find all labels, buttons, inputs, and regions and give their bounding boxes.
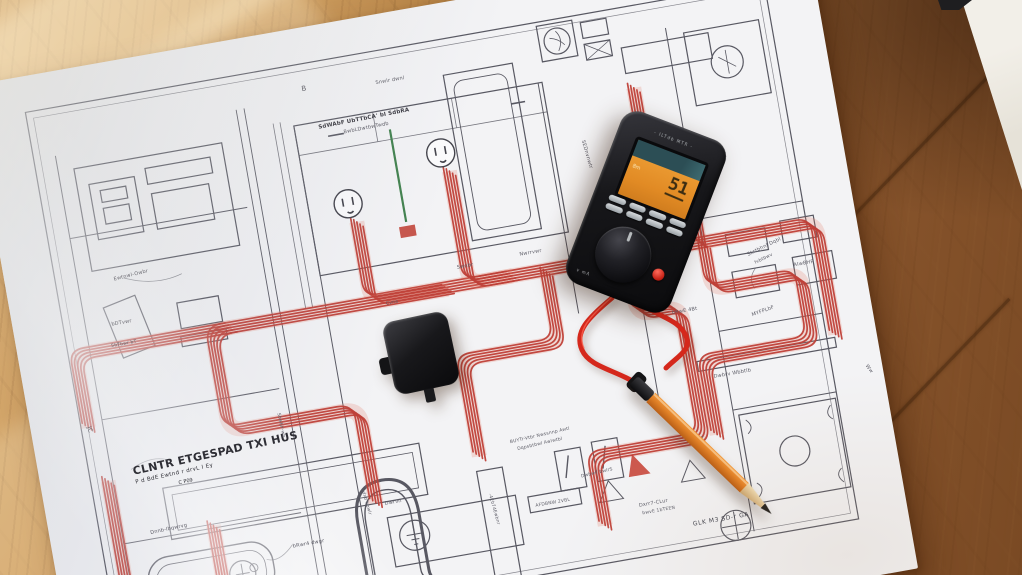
blueprint-label: SbTbwr bT (111, 341, 137, 350)
blueprint-label: bDTvwr (111, 319, 132, 327)
photo-scene: CLNTR ETGESPAD TXI HUS P d BdE Ewtnd r d… (0, 0, 1022, 575)
blueprint-label: bRwE 4Bt (672, 307, 698, 316)
blueprint-label: MYFPLbF (751, 305, 775, 318)
blueprint-label: AIwBHF (793, 260, 814, 268)
blueprint-label: SEDnvnwtr (580, 140, 593, 170)
blueprint-label: Ww (864, 364, 874, 375)
title-block: CLNTR ETGESPAD TXI HUS P d BdE Ewtnd r d… (132, 429, 303, 496)
blueprint-label: Dwbrv Wbbtlb (713, 368, 751, 380)
blueprint-labels-layer: CLNTR ETGESPAD TXI HUS P d BdE Ewtnd r d… (0, 0, 918, 575)
blueprint-label: bwvE 1bTEEN (642, 507, 675, 517)
blueprint-label: Cvna (386, 301, 399, 308)
blueprint-label: Swnbr (457, 263, 474, 271)
blueprint-label: AFDBNW 2VBL (535, 499, 570, 510)
blueprint-label: JC (85, 426, 93, 434)
corner-note: GLK M3 SD-r GA (692, 511, 749, 528)
blueprint-label: Dwrvn (384, 499, 402, 507)
blueprint-label: DwbwF bwlrS (581, 468, 614, 480)
blueprint-paper: CLNTR ETGESPAD TXI HUS P d BdE Ewtnd r d… (0, 0, 918, 575)
blueprint-label: Snwlr dwnl (375, 76, 405, 86)
dial-pointer (626, 232, 632, 242)
blueprint-label: Dnnb-lbqwrvg (150, 523, 188, 536)
blueprint-label: bRwr4 dwgr (292, 539, 324, 549)
screen-tag: 8m (631, 163, 641, 171)
screen-reading: 51 (664, 174, 691, 202)
blueprint-label: -4Eb74Ewbnr (486, 493, 499, 525)
blueprint-label: B (301, 85, 307, 93)
blueprint-label: Nwrrvwr (519, 249, 542, 258)
blueprint-label: dxb bbwlr (360, 491, 371, 515)
blueprint-label: fvbtbwv (754, 254, 773, 267)
blueprint-label: Ewtnwl-Owbr (113, 269, 148, 282)
